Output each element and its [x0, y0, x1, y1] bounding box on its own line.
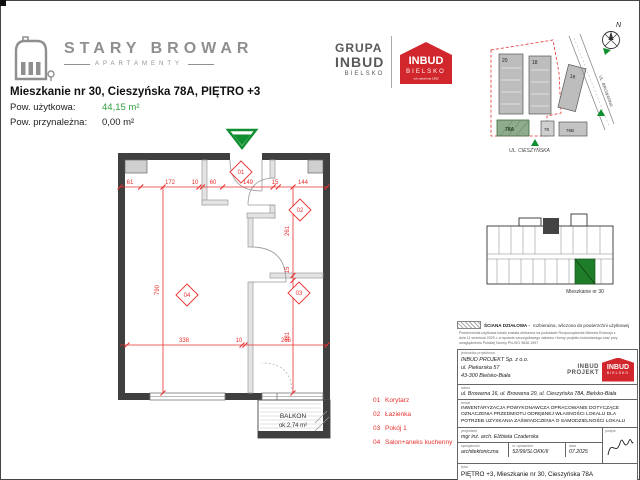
- corner-mark: [0, 0, 6, 6]
- address-row: adres ul. Browarna 16, ul. Browarna 20, …: [458, 384, 637, 399]
- street-bottom-label: UL. CIESZYŃSKA: [509, 147, 551, 154]
- subject-row: temat INWENTARYZACJA POWYKONAWCZA OPRACO…: [458, 399, 637, 428]
- key-plan: Mieszkanie nr 30: [483, 196, 640, 317]
- drawing-title: PIĘTRO +3, Mieszkanie nr 30, Cieszyńska …: [461, 470, 634, 478]
- usable-area-value: 44,15 m²: [102, 102, 140, 113]
- inbud-red-logo: INBUD BIELSKO: [602, 358, 634, 382]
- entrance-arrow-icon: [228, 130, 256, 148]
- area-disclaimer: Powierzchnia użytkowa lokalu została obl…: [459, 331, 621, 346]
- svg-text:01: 01: [238, 170, 245, 176]
- designer-name: mgr inż. arch. Elżbieta Czaderska: [461, 434, 539, 440]
- svg-text:04: 04: [184, 293, 191, 299]
- credentials-row: specjalnośćarchitektoniczna nr uprawnień…: [458, 442, 602, 457]
- project-subject: INWENTARYZACJA POWYKONAWCZA OPRACOWANIE …: [461, 406, 634, 426]
- svg-text:78A: 78A: [505, 127, 515, 133]
- svg-text:790: 790: [155, 284, 161, 295]
- staircase-block: [543, 218, 559, 234]
- signature: [605, 434, 635, 460]
- designer-row: projektant mgr inż. arch. Elżbieta Czade…: [458, 428, 602, 442]
- keyplan-apartment-highlight: [575, 259, 595, 284]
- svg-text:10: 10: [192, 180, 199, 186]
- svg-text:rok założenia 1992: rok założenia 1992: [413, 77, 439, 81]
- design-office-row: jednostka projektowa INBUD PROJEKT Sp. z…: [458, 350, 637, 384]
- compass-north-icon: N: [603, 22, 623, 49]
- svg-text:338: 338: [179, 338, 190, 344]
- page-title: Mieszkanie nr 30, Cieszyńska 78A, PIĘTRO…: [10, 86, 260, 98]
- site-plan: N 2: [483, 18, 638, 201]
- room-legend: 01Korytarz 02Łazienka 03Pokój 1 04Salon+…: [373, 397, 452, 453]
- svg-text:02: 02: [297, 208, 304, 214]
- balcony-label: BALKON: [280, 413, 307, 420]
- brand-name: STARY BROWAR: [64, 40, 253, 58]
- svg-text:78: 78: [544, 127, 550, 132]
- apartment-title-block: Mieszkanie nr 30, Cieszyńska 78A, PIĘTRO…: [10, 86, 260, 128]
- legend-item: 02Łazienka: [373, 411, 452, 418]
- wall-type-legend: ŚCIANA DZIAŁOWA -rozbieralna, wliczona d…: [457, 321, 638, 329]
- title-block: ŚCIANA DZIAŁOWA -rozbieralna, wliczona d…: [457, 321, 638, 480]
- company-city: 43-300 Bielsko-Biała: [461, 372, 528, 380]
- svg-text:BIELSKO: BIELSKO: [406, 69, 446, 75]
- brand-logo: STARY BROWAR APARTAMENTY: [10, 34, 253, 82]
- svg-text:172: 172: [165, 180, 176, 186]
- columns: [125, 160, 323, 173]
- floor-plan: BALKON ok.2,74 m²: [25, 125, 355, 475]
- keyplan-label: Mieszkanie nr 30: [566, 289, 604, 295]
- svg-text:20: 20: [502, 58, 508, 64]
- usable-area-label: Pow. użytkowa:: [10, 102, 102, 113]
- brand-subtitle: APARTAMENTY: [64, 61, 253, 67]
- balcony: BALKON ok.2,74 m²: [258, 400, 330, 438]
- svg-text:144: 144: [298, 180, 309, 186]
- legend-item: 03Pokój 1: [373, 425, 452, 432]
- grupa-inbud-logo: GRUPA INBUD BIELSKO: [335, 42, 384, 77]
- inbud-bielsko-logo: INBUD BIELSKO rok założenia 1992: [398, 40, 454, 93]
- brewery-building-icon: [10, 34, 56, 82]
- svg-text:261: 261: [285, 225, 291, 236]
- drawing-sheet: STARY BROWAR APARTAMENTY GRUPA INBUD BIE…: [0, 0, 640, 480]
- svg-text:10: 10: [236, 338, 243, 344]
- svg-text:03: 03: [296, 291, 303, 297]
- header-divider: [391, 36, 392, 88]
- signature-cell: podpis: [603, 428, 637, 463]
- svg-text:15: 15: [272, 180, 279, 186]
- legend-item: 01Korytarz: [373, 397, 452, 404]
- svg-text:381: 381: [285, 331, 291, 342]
- svg-text:61: 61: [127, 180, 134, 186]
- svg-text:N: N: [616, 22, 622, 29]
- balcony-area: ok.2,74 m²: [279, 423, 307, 429]
- svg-text:15: 15: [285, 266, 291, 273]
- company-name: INBUD PROJEKT Sp. z o.o.: [461, 356, 528, 364]
- company-street: ul. Piekarska 57: [461, 364, 528, 372]
- svg-text:76B: 76B: [566, 128, 574, 133]
- svg-text:18: 18: [532, 60, 538, 66]
- partition-walls: [202, 160, 323, 393]
- drawing-title-row: tytuł PIĘTRO +3, Mieszkanie nr 30, Ciesz…: [458, 463, 637, 480]
- legend-item: 04Salon+aneks kuchenny: [373, 439, 452, 446]
- svg-text:60: 60: [210, 180, 217, 186]
- inbud-logo-text: INBUD: [409, 55, 444, 67]
- hatch-swatch: [457, 321, 481, 329]
- svg-text:149: 149: [243, 180, 254, 186]
- inbud-projekt-logo: INBUDPROJEKT: [567, 364, 599, 376]
- project-address: ul. Browarna 16, ul. Browarna 20, ul. Ci…: [461, 391, 616, 397]
